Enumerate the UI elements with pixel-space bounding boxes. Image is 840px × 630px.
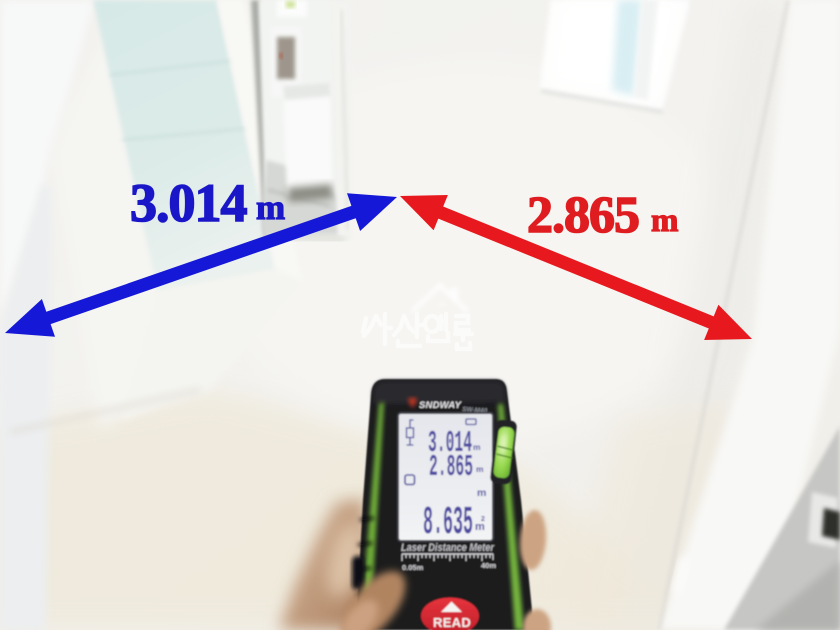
svg-text:Laser Distance Meter: Laser Distance Meter — [401, 542, 495, 554]
svg-text:m: m — [477, 487, 486, 499]
svg-text:m: m — [476, 464, 484, 474]
svg-text:2.865: 2.865 — [527, 187, 639, 244]
svg-text:2.865: 2.865 — [429, 450, 473, 485]
svg-text:3.014: 3.014 — [130, 173, 247, 233]
svg-text:2: 2 — [481, 516, 485, 523]
svg-text:m: m — [256, 188, 285, 227]
svg-text:READ: READ — [433, 615, 471, 630]
svg-text:0.05m: 0.05m — [402, 563, 424, 572]
svg-text:40m: 40m — [481, 561, 496, 570]
svg-text:8.635: 8.635 — [423, 501, 473, 546]
svg-text:SNDWAY: SNDWAY — [419, 400, 463, 411]
svg-text:m: m — [473, 442, 481, 452]
svg-text:m: m — [651, 203, 679, 239]
